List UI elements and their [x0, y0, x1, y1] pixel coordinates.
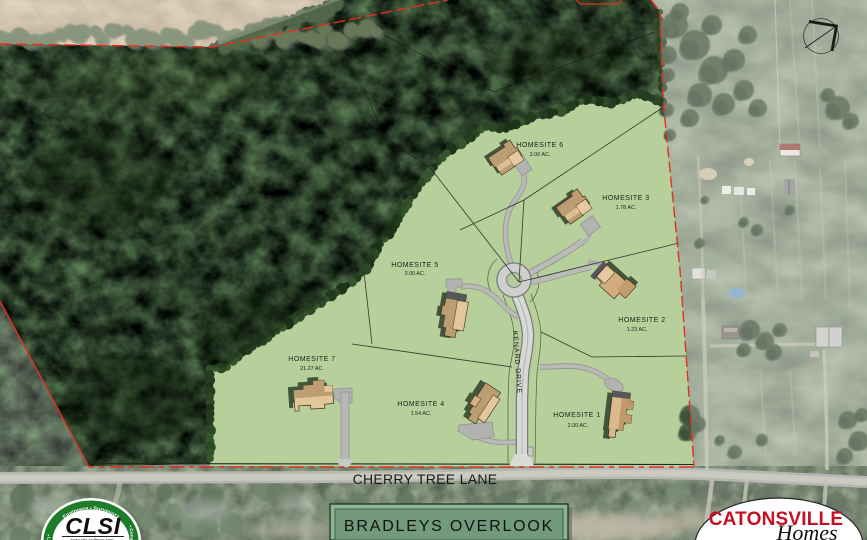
svg-text:1.78 AC.: 1.78 AC. — [616, 205, 637, 211]
svg-text:CHERRY TREE LANE: CHERRY TREE LANE — [353, 471, 498, 487]
svg-text:1.54 AC.: 1.54 AC. — [411, 411, 432, 417]
svg-text:Homes: Homes — [775, 520, 837, 540]
svg-text:CLSI: CLSI — [65, 513, 121, 539]
svg-text:HOMESITE 1: HOMESITE 1 — [553, 412, 600, 419]
svg-text:21.27 AC.: 21.27 AC. — [300, 366, 324, 372]
svg-text:3.00 AC.: 3.00 AC. — [405, 271, 426, 277]
svg-text:1.23 AC.: 1.23 AC. — [627, 327, 648, 333]
svg-text:HOMESITE 4: HOMESITE 4 — [397, 401, 444, 408]
svg-text:HOMESITE 7: HOMESITE 7 — [288, 356, 335, 363]
svg-text:HOMESITE 5: HOMESITE 5 — [391, 262, 438, 269]
svg-text:HOMESITE 6: HOMESITE 6 — [516, 142, 563, 149]
svg-text:BRADLEYS OVERLOOK: BRADLEYS OVERLOOK — [344, 518, 554, 535]
svg-text:HOMESITE 2: HOMESITE 2 — [618, 317, 665, 324]
svg-text:2.00 AC.: 2.00 AC. — [568, 423, 589, 429]
svg-text:3.00 AC.: 3.00 AC. — [530, 152, 551, 158]
svg-text:HOMESITE 3: HOMESITE 3 — [602, 195, 649, 202]
